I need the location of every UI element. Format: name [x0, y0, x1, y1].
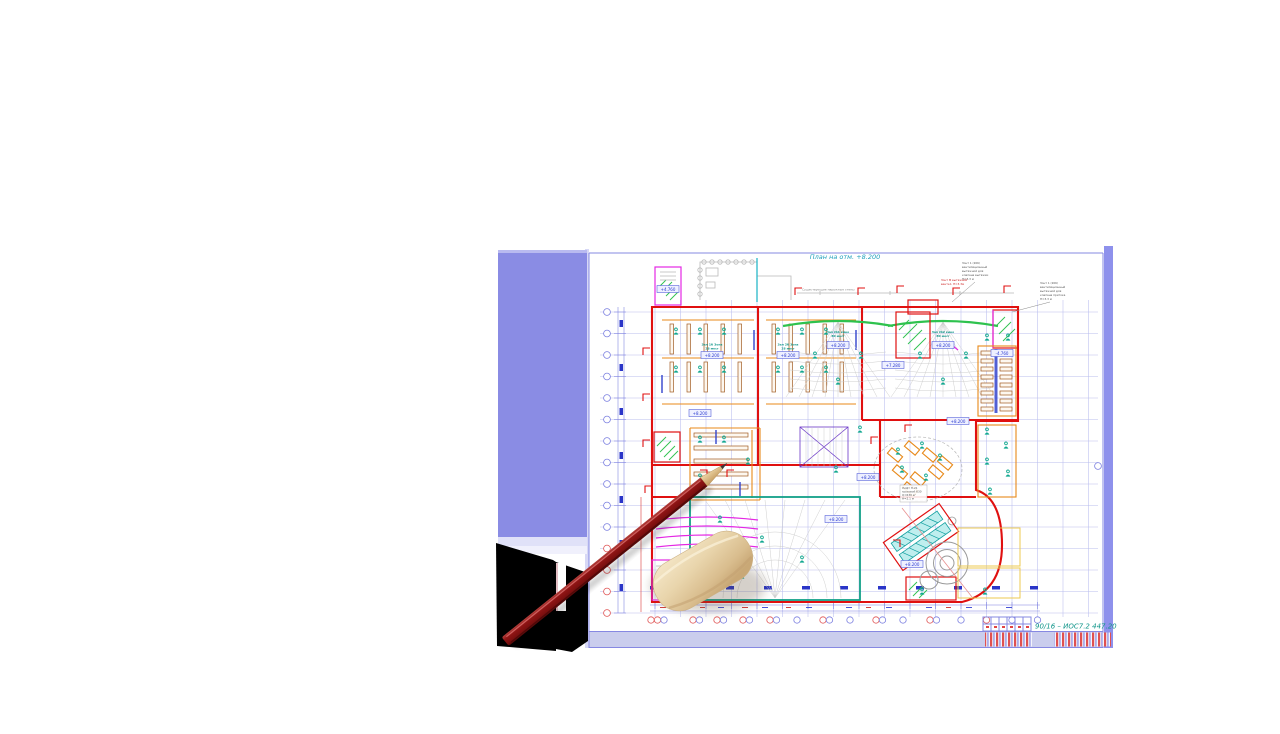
- existing-walls-note: Существующие наружные стены: [802, 288, 855, 292]
- stamp-stripes-right: [1054, 633, 1111, 647]
- room-label: 28 мест: [781, 347, 794, 351]
- elev-label: +8.200: [829, 517, 844, 522]
- room-label: 80 мест: [831, 334, 844, 338]
- elev-label: +8.200: [705, 353, 720, 358]
- blueprint-scene-canvas: Существующие наружные стены: [0, 0, 1280, 734]
- lift-note-line: Н=2.1 м: [902, 497, 914, 501]
- side-panel: [498, 250, 587, 554]
- room-label: 28 мест: [705, 347, 718, 351]
- elev-label: +7.280: [886, 363, 901, 368]
- side-panel-top-edge: [498, 250, 587, 253]
- elev-label: +8.200: [936, 343, 951, 348]
- elev-label: +4.760: [661, 287, 676, 292]
- annotation-red: Зонт М вытяжной венткл. Н=3.3м: [941, 278, 967, 286]
- stamp-stripes-left: [985, 633, 1032, 647]
- scene: Существующие наружные стены: [0, 0, 1280, 734]
- lift-note: Лифт П-21 грузовой 630 Q=630 кг Н=2.1 м: [900, 485, 927, 502]
- elev-label: +8.200: [781, 353, 796, 358]
- annotation-line: Н=3.3 м: [1040, 297, 1052, 301]
- room-label: 80 мест: [936, 334, 949, 338]
- elev-label: -4.760: [996, 351, 1009, 356]
- elev-label: +8.200: [693, 411, 708, 416]
- elev-label: +8.200: [831, 343, 846, 348]
- side-panel-body: [498, 250, 587, 537]
- drawing-code: 90/16 – ИОС7.2 447.20: [1035, 623, 1117, 631]
- side-panel-strip-1: [498, 537, 587, 546]
- sheet-title: План на отм. +8.200: [810, 253, 881, 261]
- annotation-line: венткл. Н=3.3м: [941, 282, 964, 286]
- elev-label: +8.200: [861, 475, 876, 480]
- sheet-right-strip: [1104, 246, 1113, 648]
- elev-label: +8.200: [951, 419, 966, 424]
- elev-label: +8.200: [905, 562, 920, 567]
